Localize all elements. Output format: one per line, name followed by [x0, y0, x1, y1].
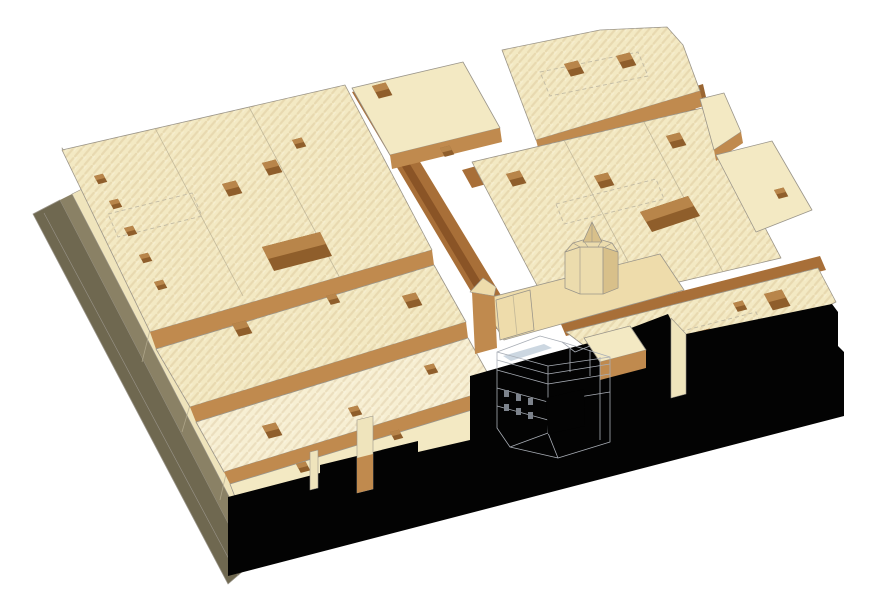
window — [504, 390, 509, 397]
church-tower-wall — [472, 286, 497, 354]
axonometric-model-figure — [0, 0, 876, 615]
window — [516, 394, 521, 401]
dome-drum-shaded-facet — [603, 247, 618, 294]
window — [504, 404, 509, 411]
gap-sliver-wall — [357, 454, 373, 493]
window — [516, 408, 521, 415]
window — [528, 398, 533, 405]
window — [528, 412, 533, 419]
gap-sliver — [310, 450, 318, 490]
screenshot-canvas — [0, 0, 876, 615]
